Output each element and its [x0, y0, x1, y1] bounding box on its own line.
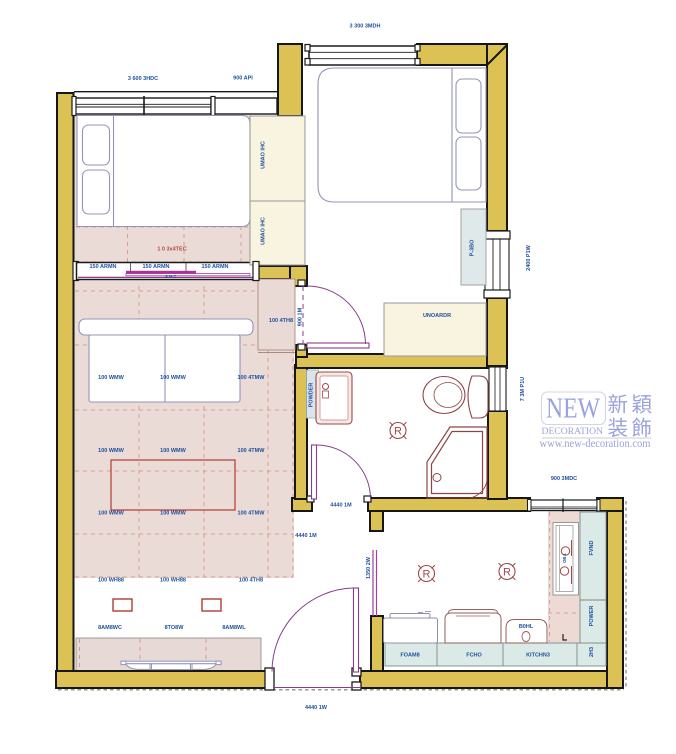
svg-text:100 4TH8: 100 4TH8	[239, 578, 263, 584]
svg-text:1350 2W: 1350 2W	[366, 556, 372, 579]
svg-text:100 4TH8: 100 4TH8	[269, 318, 293, 324]
svg-text:P-3BO: P-3BO	[470, 239, 476, 257]
svg-text:100 WH88: 100 WH88	[160, 578, 186, 584]
svg-text:100 WMW: 100 WMW	[160, 448, 186, 454]
svg-text:900 3MDC: 900 3MDC	[551, 476, 577, 482]
svg-text:3 300 3MDH: 3 300 3MDH	[350, 24, 381, 30]
svg-text:8TO8W: 8TO8W	[165, 625, 185, 631]
svg-text:100 WMW: 100 WMW	[98, 511, 124, 517]
svg-text:4440 1M: 4440 1M	[295, 533, 317, 539]
svg-text:OB 1: OB 1	[562, 552, 567, 562]
svg-text:7 3M P1U: 7 3M P1U	[520, 377, 526, 401]
svg-text:新穎: 新穎	[608, 394, 656, 417]
svg-text:8AM8WC: 8AM8WC	[98, 625, 122, 631]
svg-text:100 WH88: 100 WH88	[98, 578, 124, 584]
svg-text:3 600 3HDC: 3 600 3HDC	[128, 76, 158, 82]
svg-text:FCHO: FCHO	[466, 653, 482, 659]
svg-text:4440 1M: 4440 1M	[330, 503, 352, 509]
svg-text:900 API: 900 API	[233, 76, 253, 82]
svg-text:FOAM8: FOAM8	[400, 653, 419, 659]
svg-text:KITCHN3: KITCHN3	[526, 653, 550, 659]
svg-text:900 1M: 900 1M	[298, 307, 304, 326]
svg-text:POWER: POWER	[589, 606, 595, 627]
svg-text:150 ARMN: 150 ARMN	[143, 264, 170, 270]
svg-text:POWDER: POWDER	[309, 383, 315, 408]
svg-text:装飾: 装飾	[608, 417, 656, 440]
svg-text:100 4TMW: 100 4TMW	[238, 375, 266, 381]
svg-text:DECORATION: DECORATION	[542, 426, 604, 437]
svg-text:4440 1W: 4440 1W	[305, 705, 328, 711]
svg-text:UNOARDR: UNOARDR	[423, 313, 451, 319]
svg-text:2400 P1W: 2400 P1W	[526, 244, 532, 270]
svg-text:2H3: 2H3	[589, 647, 595, 657]
svg-text:100 WMW: 100 WMW	[160, 375, 186, 381]
svg-text:NEW: NEW	[546, 393, 601, 425]
svg-text:8AM8WL: 8AM8WL	[222, 625, 246, 631]
svg-text:1 0 3x4TEC: 1 0 3x4TEC	[157, 247, 186, 253]
svg-text:100 WMW: 100 WMW	[160, 511, 186, 517]
svg-text:www.new-decoration.com: www.new-decoration.com	[540, 438, 651, 450]
svg-text:100 WMW: 100 WMW	[98, 448, 124, 454]
svg-text:UMAO IHC: UMAO IHC	[261, 217, 267, 245]
svg-text:100 4TMW: 100 4TMW	[238, 448, 266, 454]
svg-text:FVND: FVND	[589, 540, 595, 555]
svg-text:100 4TMW: 100 4TMW	[238, 511, 266, 517]
svg-text:150 ARMN: 150 ARMN	[202, 264, 229, 270]
svg-text:B0HL: B0HL	[519, 624, 534, 630]
svg-text:100 WMW: 100 WMW	[98, 375, 124, 381]
svg-text:UMAO IHC: UMAO IHC	[261, 141, 267, 169]
svg-text:150 ARMN: 150 ARMN	[90, 264, 117, 270]
svg-text:8 M C: 8 M C	[165, 274, 176, 279]
